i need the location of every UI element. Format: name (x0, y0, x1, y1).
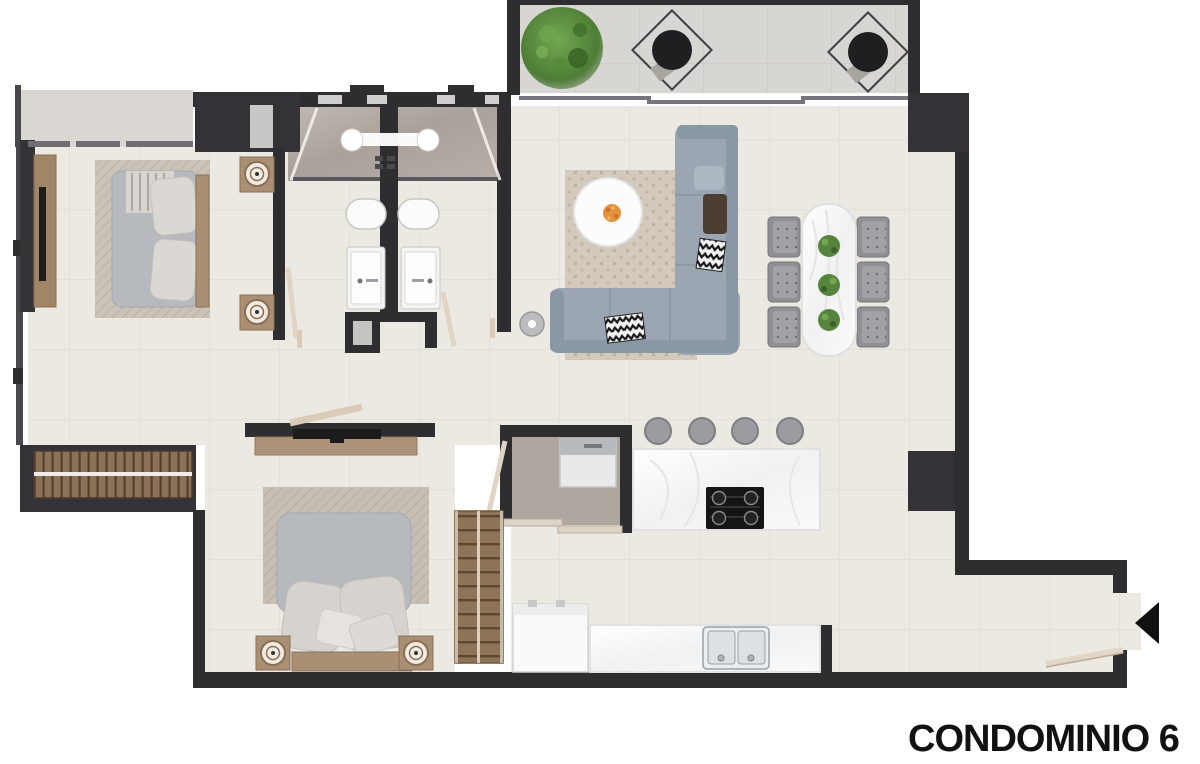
headboard (292, 652, 412, 671)
double-bed (112, 171, 209, 307)
gas-cooktop (706, 487, 764, 529)
bed-pillow (149, 176, 199, 236)
bath-bottom-stub (425, 312, 437, 348)
bath-right-wall (497, 92, 511, 332)
headboard (196, 175, 209, 307)
right-top-block (908, 93, 969, 152)
ledge-left-wall (15, 85, 21, 147)
nightstand-lamp (240, 157, 274, 192)
kitchen-counter (590, 625, 820, 672)
tv-on-desk (293, 429, 381, 439)
floor-lamp (520, 312, 544, 336)
table-plant (818, 309, 840, 331)
bar-stool (732, 418, 758, 444)
laundry-right-wall (620, 425, 632, 533)
bedroom1-top-block (195, 92, 300, 152)
laundry-left-wall (500, 425, 512, 522)
shower-head (417, 129, 439, 151)
top-wall-notch-2 (448, 85, 474, 93)
door-frame-stub-2 (490, 318, 495, 338)
sliding-door (519, 96, 908, 104)
bath-niche (353, 321, 372, 345)
toilet (346, 199, 386, 229)
dining-chair (857, 307, 889, 347)
bedroom1-bath-wall (273, 148, 285, 340)
window-break-2 (120, 141, 126, 147)
dining-area (768, 204, 889, 356)
balcony-left-wall (507, 0, 520, 95)
table-plant (818, 235, 840, 257)
dining-chair (768, 307, 800, 347)
sink-vanity (401, 247, 440, 309)
bedroom1-window (28, 141, 193, 147)
entry-top-wall (955, 560, 1127, 575)
shower-head (341, 129, 363, 151)
right-wall (955, 152, 969, 562)
wardrobe (455, 511, 503, 663)
toilet (398, 199, 439, 229)
table-plant (818, 274, 840, 296)
bedroom2-left-wall (193, 510, 205, 680)
dining-chair (768, 262, 800, 302)
fridge-handle (528, 600, 537, 607)
balcony-plant (521, 7, 603, 89)
refrigerator (513, 600, 588, 672)
counter-end-wall (820, 625, 832, 673)
dining-chair (857, 217, 889, 257)
window-slit-2 (367, 95, 387, 104)
closet-niche (250, 105, 273, 148)
balcony-top-wall (519, 0, 908, 5)
chevron-pillow-2 (605, 313, 646, 343)
balcony-right-wall (908, 0, 920, 95)
shower-glass (293, 177, 380, 181)
bottom-wall (193, 672, 1127, 688)
dining-chair (768, 217, 800, 257)
dining-chairs-right (857, 217, 889, 347)
sofa-throw-cushion (703, 194, 727, 234)
laundry-top-wall (500, 425, 632, 437)
bar-stool (645, 418, 671, 444)
shower-glass (398, 177, 497, 181)
laundry-sliding-panel-2 (558, 526, 622, 533)
coffee-table (574, 178, 642, 246)
bed-pillow (149, 238, 198, 302)
bar-stool (777, 418, 803, 444)
double-bed (277, 513, 412, 671)
window-break (70, 141, 76, 147)
sink-vanity (347, 247, 385, 309)
nightstand-lamp (399, 636, 433, 670)
top-wall-notch (350, 85, 384, 93)
tv-console (34, 155, 56, 307)
nightstand-lamp (240, 295, 274, 330)
left-wall-pier-2 (13, 368, 23, 384)
plan-title: CONDOMINIO 6 (908, 718, 1200, 760)
window-slit-4 (485, 95, 499, 104)
fridge-handle (556, 600, 565, 607)
bedroom2 (255, 407, 503, 671)
window-slit-3 (437, 95, 455, 104)
tv-wall-block (20, 140, 35, 312)
exterior-ledge (21, 90, 193, 142)
washer (560, 439, 616, 487)
chevron-pillow (696, 238, 726, 271)
entry-jamb (1113, 575, 1127, 593)
floor-plan-drawing (0, 0, 1200, 764)
dining-table (802, 204, 856, 356)
kitchen-island (633, 449, 820, 530)
tv-screen (39, 187, 46, 281)
bar-stool (689, 418, 715, 444)
floor-plan-page: CONDOMINIO 6 (0, 0, 1200, 764)
table-flowers (603, 204, 621, 222)
nightstand-lamp (256, 636, 290, 670)
double-sink (703, 627, 769, 669)
dining-chairs-left (768, 217, 800, 347)
laundry-sliding-panel (502, 519, 562, 526)
window-slit (318, 95, 342, 104)
slatted-closet (34, 451, 192, 498)
sofa-pillow (694, 166, 724, 190)
door-frame-stub (297, 330, 302, 348)
right-step-block (908, 451, 955, 511)
dining-chair (857, 262, 889, 302)
